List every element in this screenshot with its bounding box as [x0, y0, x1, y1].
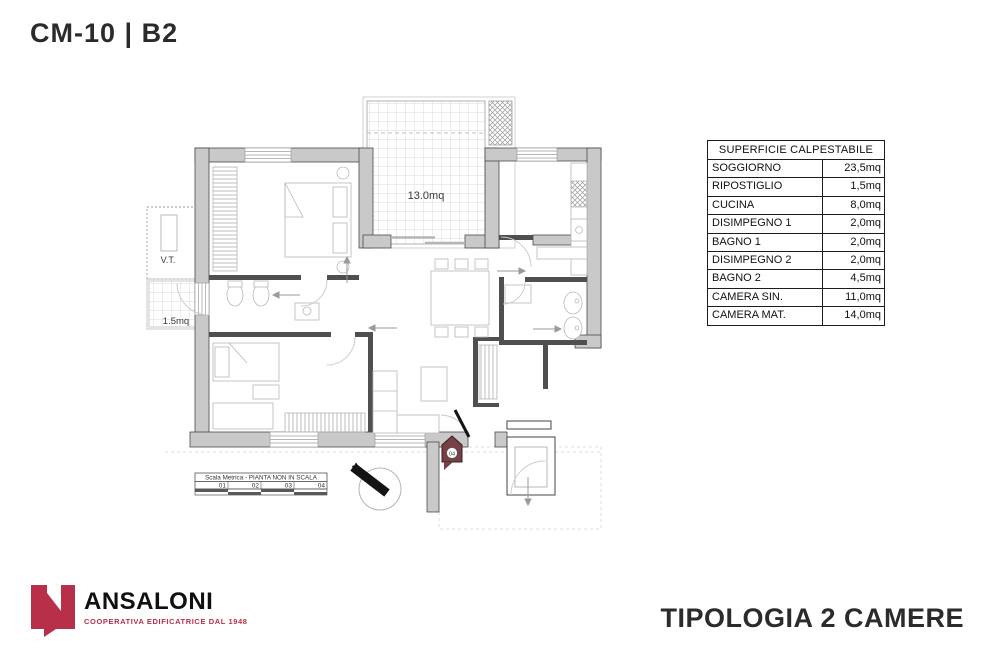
stair-landing — [507, 421, 555, 495]
living-room-furniture — [373, 259, 489, 433]
second-bedroom-furniture — [213, 343, 365, 432]
areas-table: SUPERFICIE CALPESTABILE SOGGIORNO23,5mq … — [707, 140, 885, 326]
vt-label: V.T. — [161, 255, 176, 265]
logo-mark-icon — [30, 584, 76, 638]
master-bedroom-furniture — [213, 167, 351, 273]
balcony-area-label: 1.5mq — [163, 316, 189, 327]
scale-tick-03: 03 — [285, 483, 293, 490]
table-row: BAGNO 24,5mq — [708, 270, 884, 288]
table-row: CAMERA SIN.11,0mq — [708, 289, 884, 307]
bathroom1-fixtures — [227, 281, 319, 320]
interior-walls — [209, 235, 587, 432]
scale-tick-04: 04 — [318, 483, 326, 490]
storage-shelves — [479, 345, 497, 399]
logo-tagline: COOPERATIVA EDIFICATRICE DAL 1948 — [84, 617, 248, 626]
table-row: DISIMPEGNO 12,0mq — [708, 215, 884, 233]
plan-code-title: CM-10 | B2 — [30, 18, 178, 49]
typology-title: TIPOLOGIA 2 CAMERE — [660, 603, 964, 634]
perforated-screen — [489, 101, 512, 145]
table-row: BAGNO 12,0mq — [708, 234, 884, 252]
scale-tick-02: 02 — [252, 483, 260, 490]
floor-plan-drawing: 13.0mq V.T. 1.5mq — [135, 85, 605, 550]
table-row: SOGGIORNO23,5mq — [708, 160, 884, 178]
table-row: DISIMPEGNO 22,0mq — [708, 252, 884, 270]
north-arrow: N — [350, 461, 401, 510]
technical-room: V.T. — [147, 207, 195, 279]
scale-bar-title: Scala Metrica - PIANTA NON IN SCALA — [205, 475, 318, 482]
scale-tick-01: 01 — [219, 483, 227, 490]
kitchen-furniture — [537, 163, 587, 275]
table-row: CAMERA MAT.14,0mq — [708, 307, 884, 324]
unit-badge-number: 04 — [449, 452, 455, 458]
areas-table-header: SUPERFICIE CALPESTABILE — [708, 141, 884, 160]
scale-bar: Scala Metrica - PIANTA NON IN SCALA 01 0… — [195, 473, 327, 495]
table-row: CUCINA8,0mq — [708, 197, 884, 215]
logo-name: ANSALONI — [84, 590, 248, 614]
terrace-area-label: 13.0mq — [408, 190, 445, 202]
floorplan-sheet: CM-10 | B2 — [0, 0, 1000, 645]
bathroom2-fixtures — [505, 285, 582, 339]
company-logo: ANSALONI COOPERATIVA EDIFICATRICE DAL 19… — [30, 584, 248, 638]
table-row: RIPOSTIGLIO1,5mq — [708, 178, 884, 196]
